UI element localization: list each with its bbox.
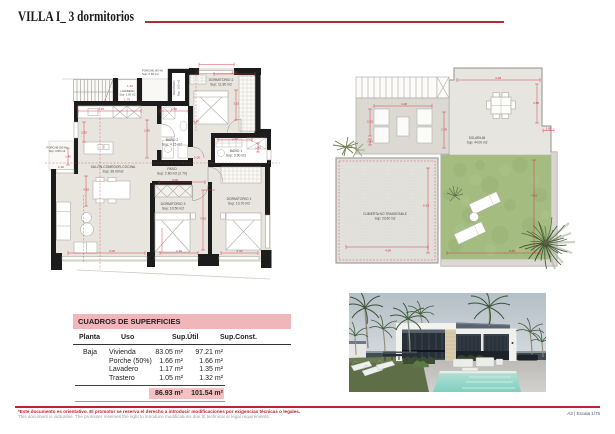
svg-text:SOLARIUM: SOLARIUM — [469, 136, 486, 140]
svg-text:Sup: 0.80 m2: Sup: 0.80 m2 — [142, 72, 159, 76]
svg-text:SALÓN-COMEDOR-COCINA: SALÓN-COMEDOR-COCINA — [91, 164, 136, 169]
svg-text:BAÑO 1: BAÑO 1 — [230, 148, 243, 153]
svg-text:Sup: 11.80 m2: Sup: 11.80 m2 — [210, 83, 232, 87]
svg-text:2.90: 2.90 — [236, 249, 242, 253]
svg-text:Sup: 1.95 m2: Sup: 1.95 m2 — [120, 92, 136, 96]
svg-text:2.78: 2.78 — [441, 128, 447, 132]
svg-text:LAVADERO: LAVADERO — [120, 89, 134, 93]
svg-text:1.65: 1.65 — [546, 126, 552, 130]
svg-text:3.30: 3.30 — [231, 70, 237, 74]
svg-text:3.09: 3.09 — [172, 178, 178, 182]
svg-text:4.28: 4.28 — [401, 102, 407, 106]
svg-text:5.25: 5.25 — [423, 204, 429, 208]
svg-text:4.28: 4.28 — [495, 76, 501, 80]
svg-text:1.00: 1.00 — [194, 156, 200, 160]
svg-text:0.44: 0.44 — [367, 140, 373, 144]
svg-text:4.53: 4.53 — [531, 194, 537, 198]
svg-text:Sup: 44.00 m2: Sup: 44.00 m2 — [467, 141, 488, 145]
svg-text:DORMITORIO 1: DORMITORIO 1 — [227, 197, 252, 201]
svg-text:2.50: 2.50 — [81, 131, 87, 135]
svg-text:2.80: 2.80 — [232, 136, 238, 140]
svg-text:1.79: 1.79 — [124, 97, 130, 101]
svg-text:1.40: 1.40 — [65, 155, 71, 159]
svg-text:Sup: 13.70 m2: Sup: 13.70 m2 — [228, 202, 250, 206]
svg-text:DORMITORIO 3: DORMITORIO 3 — [161, 202, 186, 206]
svg-text:5.80: 5.80 — [509, 249, 515, 253]
svg-text:Sup: 23.60 m2: Sup: 23.60 m2 — [375, 217, 396, 221]
svg-text:Sup: 2.80 m2 (2.70): Sup: 2.80 m2 (2.70) — [157, 172, 187, 176]
svg-text:1.20: 1.20 — [58, 165, 64, 169]
svg-text:Sup: 10.50 m2: Sup: 10.50 m2 — [162, 207, 184, 211]
svg-text:1.40: 1.40 — [255, 146, 261, 150]
svg-text:3.00: 3.00 — [109, 249, 115, 253]
svg-text:1.40: 1.40 — [171, 107, 177, 111]
svg-text:3.15: 3.15 — [233, 102, 239, 106]
svg-text:Sup: 4.15 m2: Sup: 4.15 m2 — [162, 143, 182, 147]
svg-text:1.10: 1.10 — [127, 84, 133, 88]
svg-text:2.22: 2.22 — [367, 120, 373, 124]
svg-text:DORMITORIO 2: DORMITORIO 2 — [209, 78, 234, 82]
svg-text:4.15: 4.15 — [98, 107, 104, 111]
svg-text:Sup: 3.90 m2: Sup: 3.90 m2 — [226, 154, 246, 158]
svg-text:4.40: 4.40 — [193, 120, 199, 124]
svg-text:2.90: 2.90 — [144, 129, 150, 133]
svg-text:CUBIERTA NO TRANSITABLE: CUBIERTA NO TRANSITABLE — [363, 212, 407, 216]
svg-text:PASO: PASO — [167, 167, 177, 171]
svg-text:2.90: 2.90 — [176, 249, 182, 253]
svg-text:Sup: 36.00m2: Sup: 36.00m2 — [102, 170, 123, 174]
svg-text:3.00: 3.00 — [200, 217, 206, 221]
svg-text:BAÑO 2: BAÑO 2 — [166, 137, 179, 142]
svg-text:TRASTERO: TRASTERO — [172, 80, 176, 96]
svg-text:4.30: 4.30 — [83, 188, 89, 192]
svg-text:Sup: 0.85 m2: Sup: 0.85 m2 — [49, 149, 66, 153]
svg-text:Sup: 1.05 m2: Sup: 1.05 m2 — [177, 79, 181, 96]
svg-text:4.50: 4.50 — [385, 249, 391, 253]
svg-text:3.65: 3.65 — [533, 101, 539, 105]
